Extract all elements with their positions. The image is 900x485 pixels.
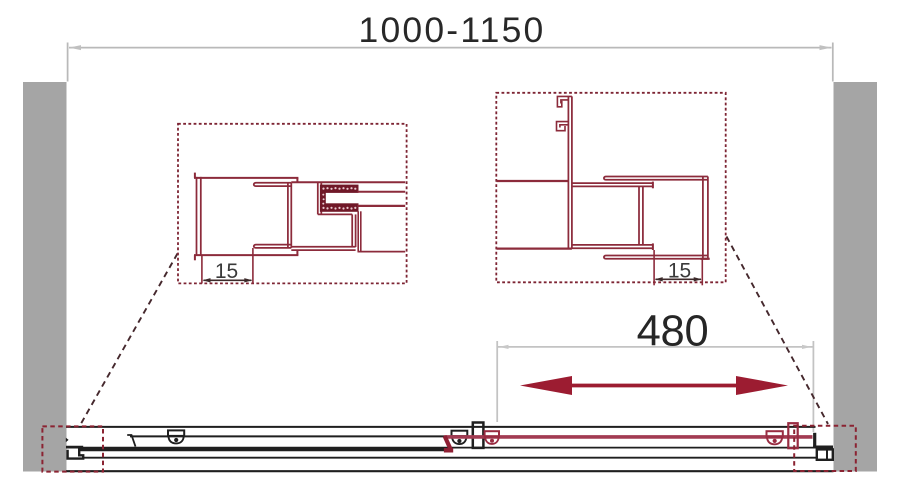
svg-text:15: 15: [668, 260, 691, 283]
svg-text:480: 480: [637, 308, 709, 356]
svg-text:15: 15: [215, 260, 238, 283]
svg-text:1000-1150: 1000-1150: [359, 10, 546, 50]
